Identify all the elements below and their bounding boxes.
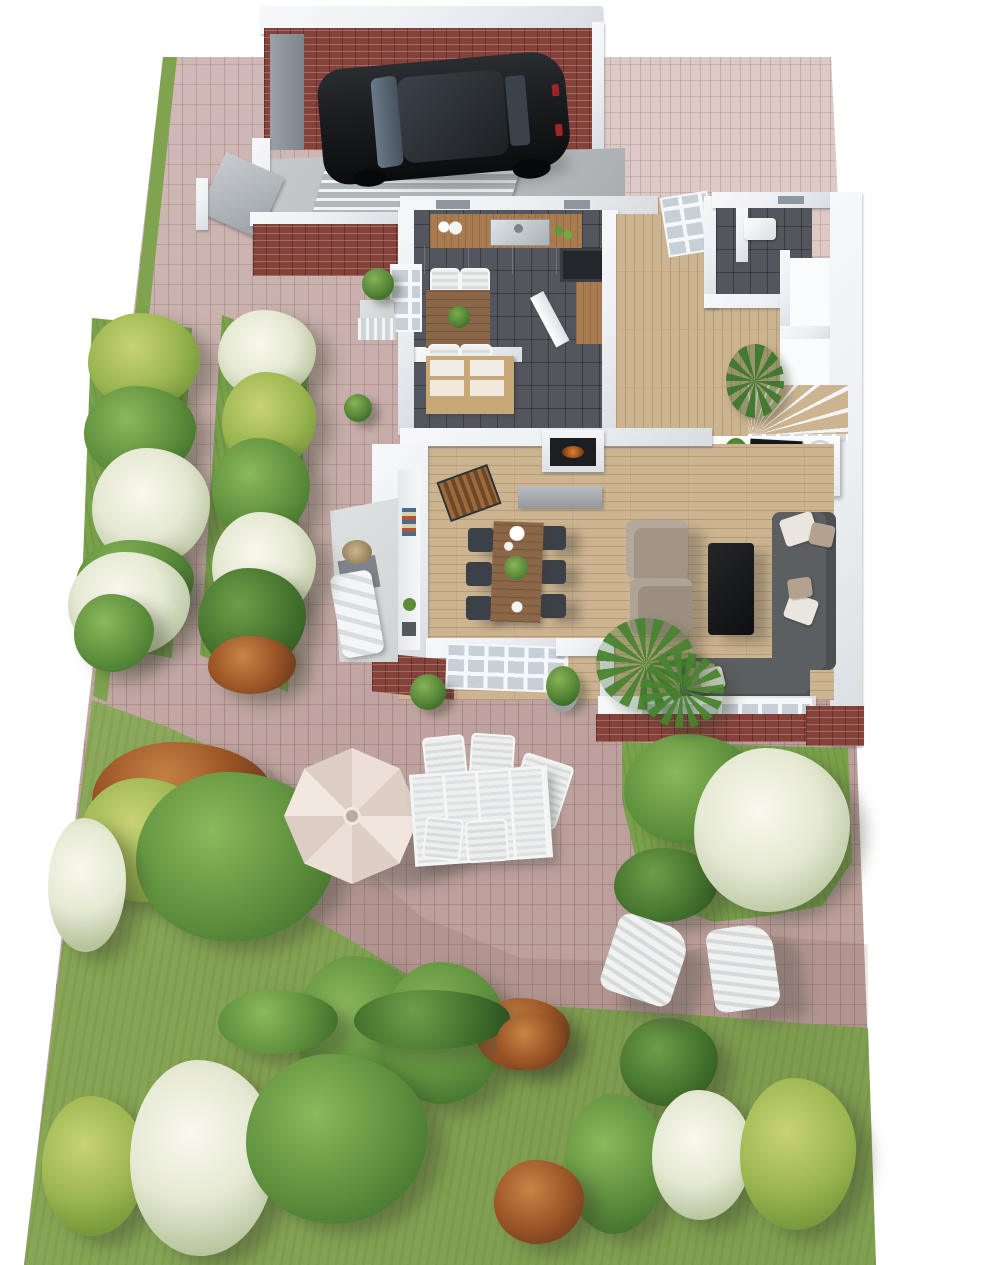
blossom-plant [652, 1090, 752, 1220]
boxwoodpot-plant [546, 666, 580, 706]
boxwood-plant [362, 268, 394, 300]
garden-floor-plan-scene [0, 0, 1000, 1265]
blossom-plant [48, 818, 126, 952]
red-plant [494, 1160, 584, 1244]
boxwood-plant [344, 394, 372, 422]
blossom-plant [694, 748, 850, 912]
outdoor-chair [465, 819, 510, 864]
palm-plant [640, 652, 724, 728]
green-plant [74, 594, 154, 672]
vegetation-layer [0, 0, 1000, 1265]
boxwood-plant [410, 674, 446, 710]
plant-plant [726, 344, 784, 418]
outdoor-chair [422, 816, 464, 862]
yellowgreen-plant [740, 1078, 856, 1230]
red-plant [496, 1014, 566, 1070]
red-plant [208, 636, 296, 694]
umbrella-pole-knob [346, 810, 358, 822]
green-plant [246, 1054, 428, 1224]
